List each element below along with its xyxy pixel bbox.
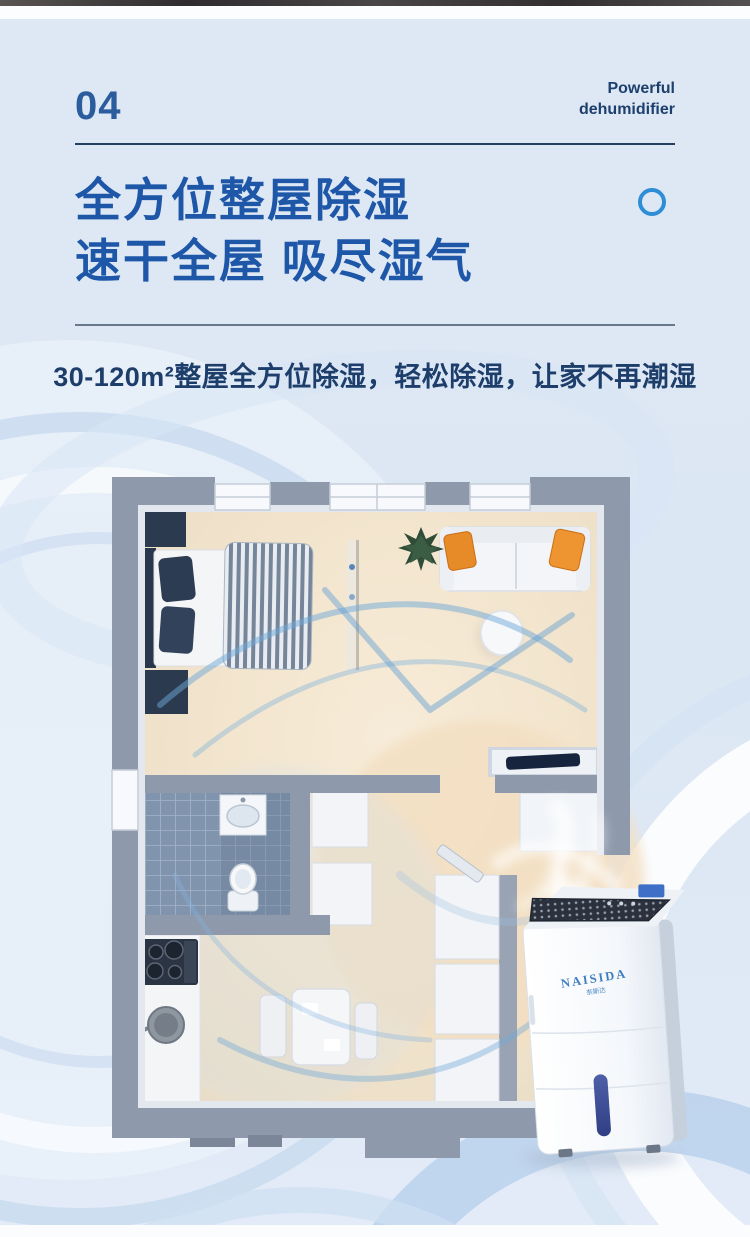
page-number: 04 — [75, 84, 122, 129]
shelf-item — [349, 564, 355, 570]
burner — [149, 945, 163, 959]
place-setting — [324, 1039, 340, 1051]
divider-line-bottom — [75, 324, 675, 326]
stove-controls — [184, 941, 196, 983]
faucet — [241, 798, 246, 803]
bottom-white-strip — [0, 1225, 750, 1237]
bed — [138, 542, 313, 670]
control-display — [638, 884, 664, 897]
kitchen — [138, 935, 200, 1108]
section-tagline: Powerful dehumidifier — [579, 78, 675, 120]
pillow — [158, 606, 195, 654]
dehumidifier-body: NAISIDA 奈斯达 — [520, 878, 703, 1161]
pillow — [158, 555, 196, 602]
burner — [169, 966, 182, 979]
title-line1: 全方位整屋除湿 — [75, 170, 474, 231]
sofa — [440, 527, 590, 591]
sofa-cushion-orange — [443, 531, 477, 571]
shelf-item — [349, 594, 355, 600]
sink — [220, 795, 266, 835]
toilet — [228, 864, 258, 911]
foot — [646, 1144, 661, 1153]
burner — [165, 941, 183, 959]
divider-line-top — [75, 143, 675, 145]
title-accent-circle-icon — [638, 188, 666, 216]
title-line2: 速干全屋 吸尽湿气 — [75, 231, 474, 292]
section-subtitle: 30-120m²整屋全方位除湿，轻松除湿，让家不再潮湿 — [0, 355, 750, 394]
burner — [147, 963, 163, 979]
bathroom — [138, 793, 290, 915]
tagline-line2: dehumidifier — [579, 99, 675, 120]
storage-cabinet — [312, 791, 368, 847]
section-title: 全方位整屋除湿 速干全屋 吸尽湿气 — [75, 170, 474, 292]
top-white-strip — [0, 6, 750, 19]
window-sill — [112, 770, 138, 830]
dining-chair — [260, 995, 286, 1057]
partition-wall — [347, 540, 359, 670]
stove — [140, 939, 198, 985]
closet-block — [435, 964, 499, 1034]
dehumidifier-product: NAISIDA 奈斯达 — [498, 790, 710, 1190]
nightstand — [140, 670, 188, 714]
tagline-line1: Powerful — [579, 78, 675, 99]
foot — [558, 1149, 573, 1158]
